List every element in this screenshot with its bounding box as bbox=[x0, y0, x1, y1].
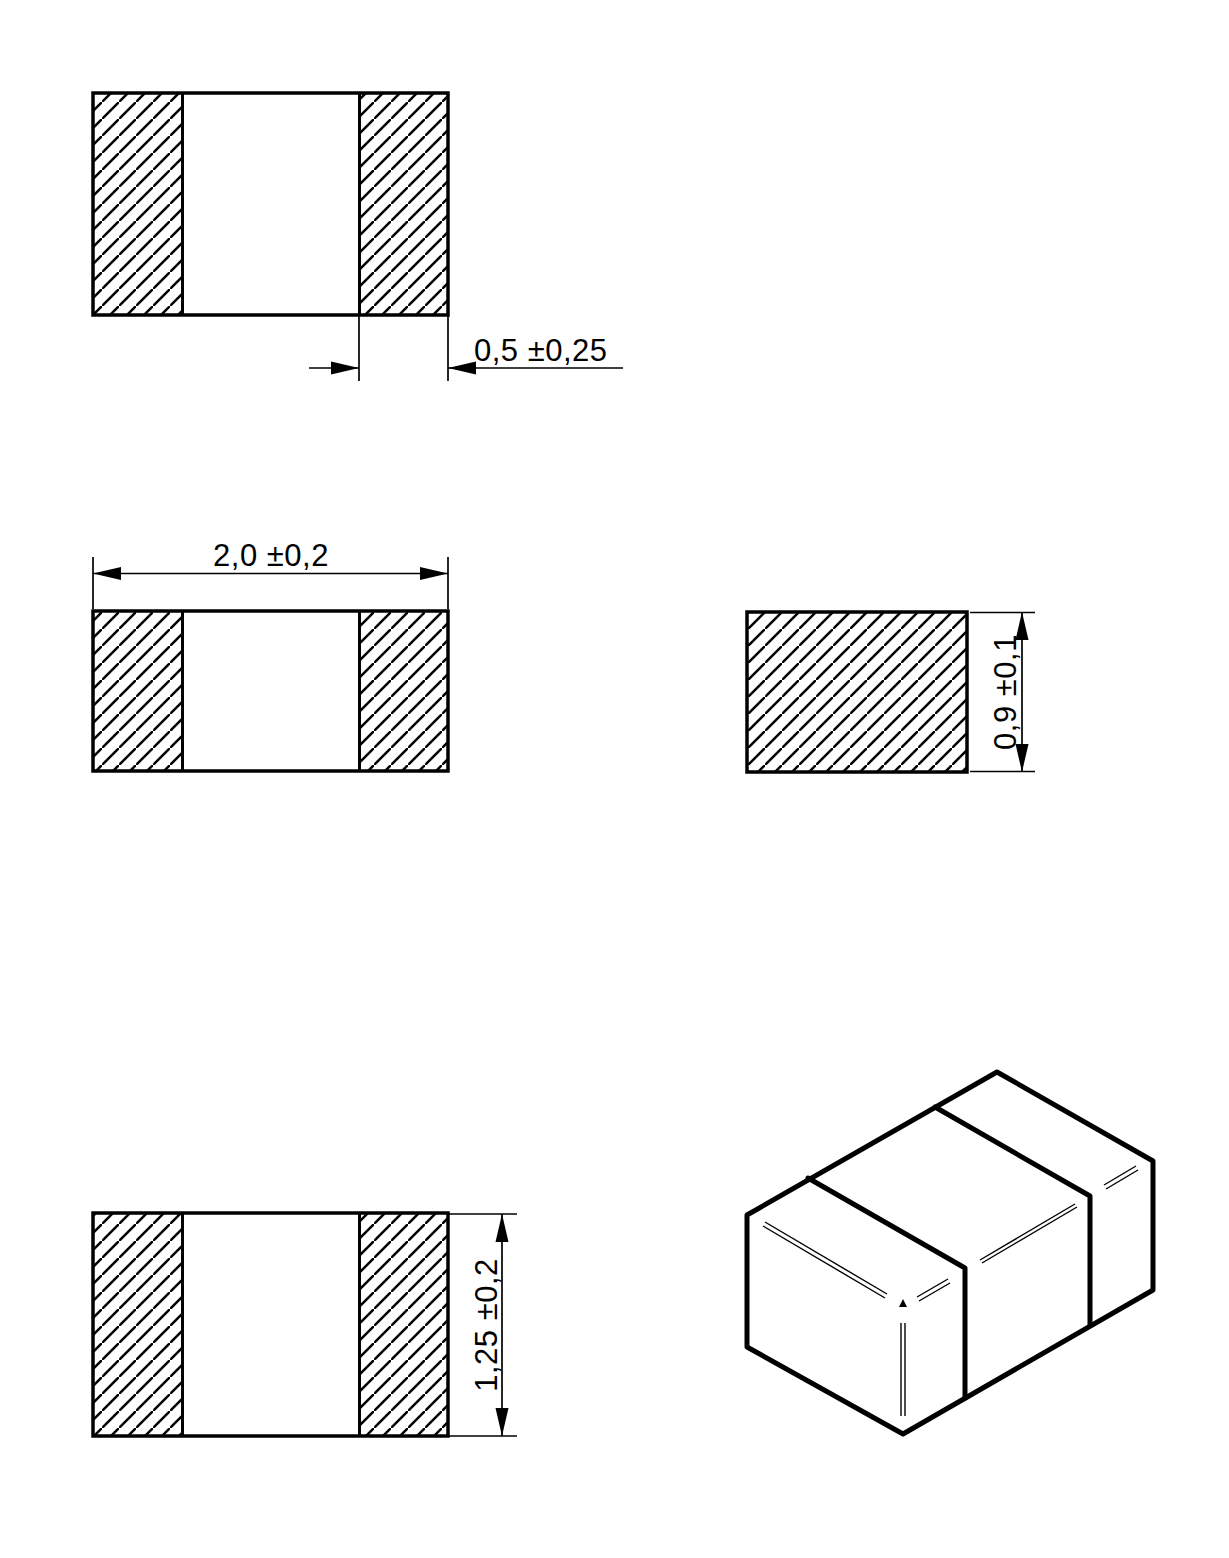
dim-label-height: 0,9 ±0,1 bbox=[988, 634, 1023, 750]
cap-highlight-left-vertical bbox=[901, 1323, 905, 1416]
arrowhead bbox=[496, 1408, 509, 1436]
cap-highlight-right-top bbox=[1104, 1166, 1138, 1189]
dimension-height: 0,9 ±0,1 bbox=[970, 612, 1035, 772]
arrowhead bbox=[448, 362, 476, 375]
arrowhead bbox=[93, 567, 121, 580]
top-view: 0,5 ±0,25 bbox=[93, 93, 623, 381]
dim-label-length: 2,0 ±0,2 bbox=[213, 538, 329, 573]
front-view: 2,0 ±0,2 bbox=[93, 538, 448, 771]
cap-highlight-left-face bbox=[763, 1222, 887, 1298]
terminal-hatch-left bbox=[93, 93, 182, 315]
arrowhead bbox=[331, 362, 359, 375]
terminal-hatch-right bbox=[359, 93, 448, 315]
cap-highlight-left-front bbox=[917, 1279, 950, 1301]
dim-label-terminal-width: 0,5 ±0,25 bbox=[474, 333, 608, 368]
terminal-hatch-right bbox=[359, 1213, 448, 1436]
dimension-length: 2,0 ±0,2 bbox=[93, 538, 448, 609]
terminal-hatch-full bbox=[747, 612, 967, 772]
terminal-hatch-right bbox=[359, 611, 448, 771]
terminal-hatch-left bbox=[93, 1213, 182, 1436]
terminal-hatch-left bbox=[93, 611, 182, 771]
terminal-cap-edge-right bbox=[935, 1107, 1090, 1325]
isometric-view bbox=[747, 1072, 1153, 1434]
dimension-drawing-page: 0,5 ±0,25 2,0 ±0,2 bbox=[0, 0, 1229, 1558]
arrowhead bbox=[496, 1214, 509, 1242]
plan-view: 1,25 ±0,2 bbox=[93, 1213, 517, 1436]
corner-mark bbox=[899, 1299, 907, 1307]
dim-label-width: 1,25 ±0,2 bbox=[469, 1258, 504, 1392]
arrowhead bbox=[420, 567, 448, 580]
chip-dimension-drawing: 0,5 ±0,25 2,0 ±0,2 bbox=[0, 0, 1229, 1558]
dimension-terminal-width: 0,5 ±0,25 bbox=[309, 315, 623, 381]
dimension-width: 1,25 ±0,2 bbox=[448, 1214, 517, 1436]
side-view: 0,9 ±0,1 bbox=[747, 612, 1035, 772]
body-edge-highlight bbox=[980, 1204, 1077, 1263]
